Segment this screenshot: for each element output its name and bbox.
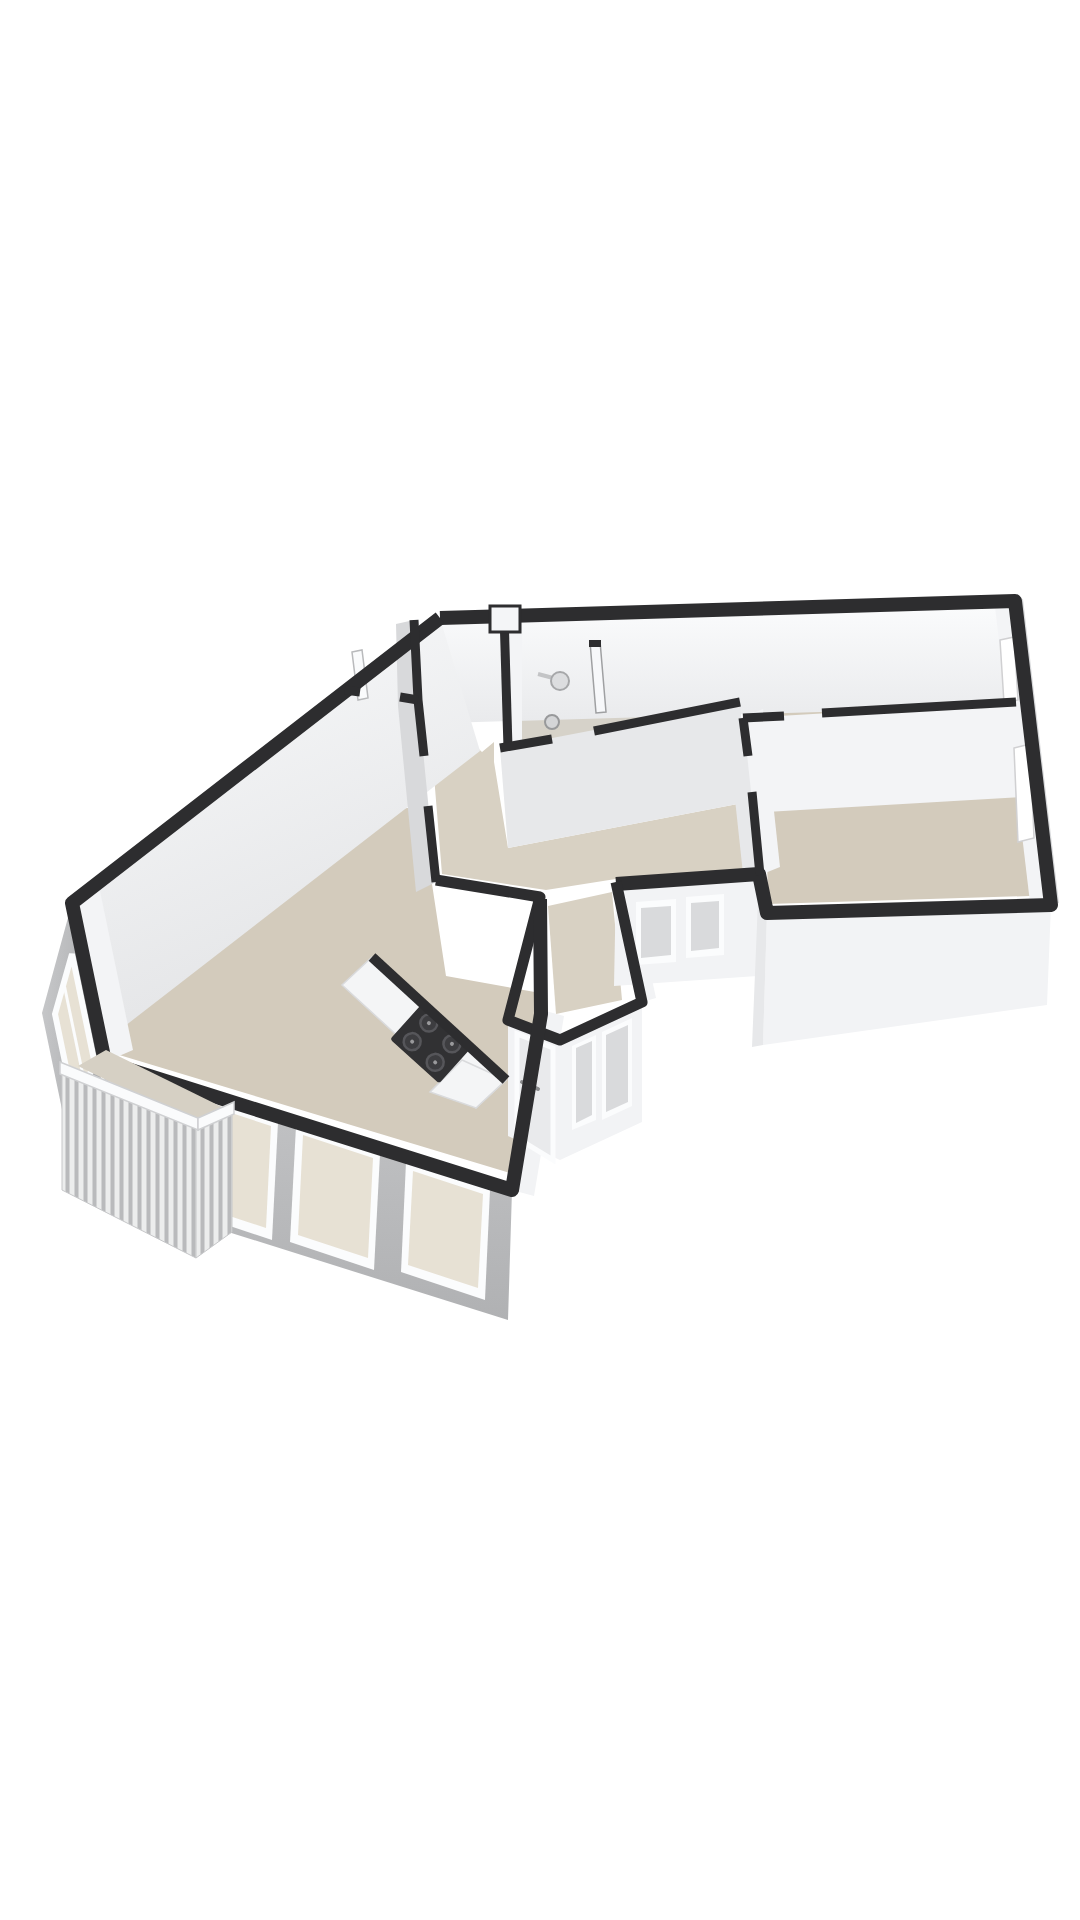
shower-control-icon xyxy=(545,715,559,729)
balcony-railing-side xyxy=(196,1108,232,1258)
shower-head-icon xyxy=(551,672,569,690)
entrance-bay-floor xyxy=(548,892,622,1014)
floorplan-stage xyxy=(0,0,1080,1920)
hall-window-1-glass xyxy=(641,906,671,958)
north-wall-niche xyxy=(490,606,520,632)
shower-partition-top xyxy=(589,640,601,647)
floorplan-3d-render xyxy=(0,0,1080,1920)
bathroom-west-wall-top xyxy=(504,614,508,748)
hall-window-2-glass xyxy=(691,901,719,951)
bedrooms-divider-face xyxy=(743,702,1021,813)
right-bedroom-south-facade xyxy=(763,905,1051,1045)
